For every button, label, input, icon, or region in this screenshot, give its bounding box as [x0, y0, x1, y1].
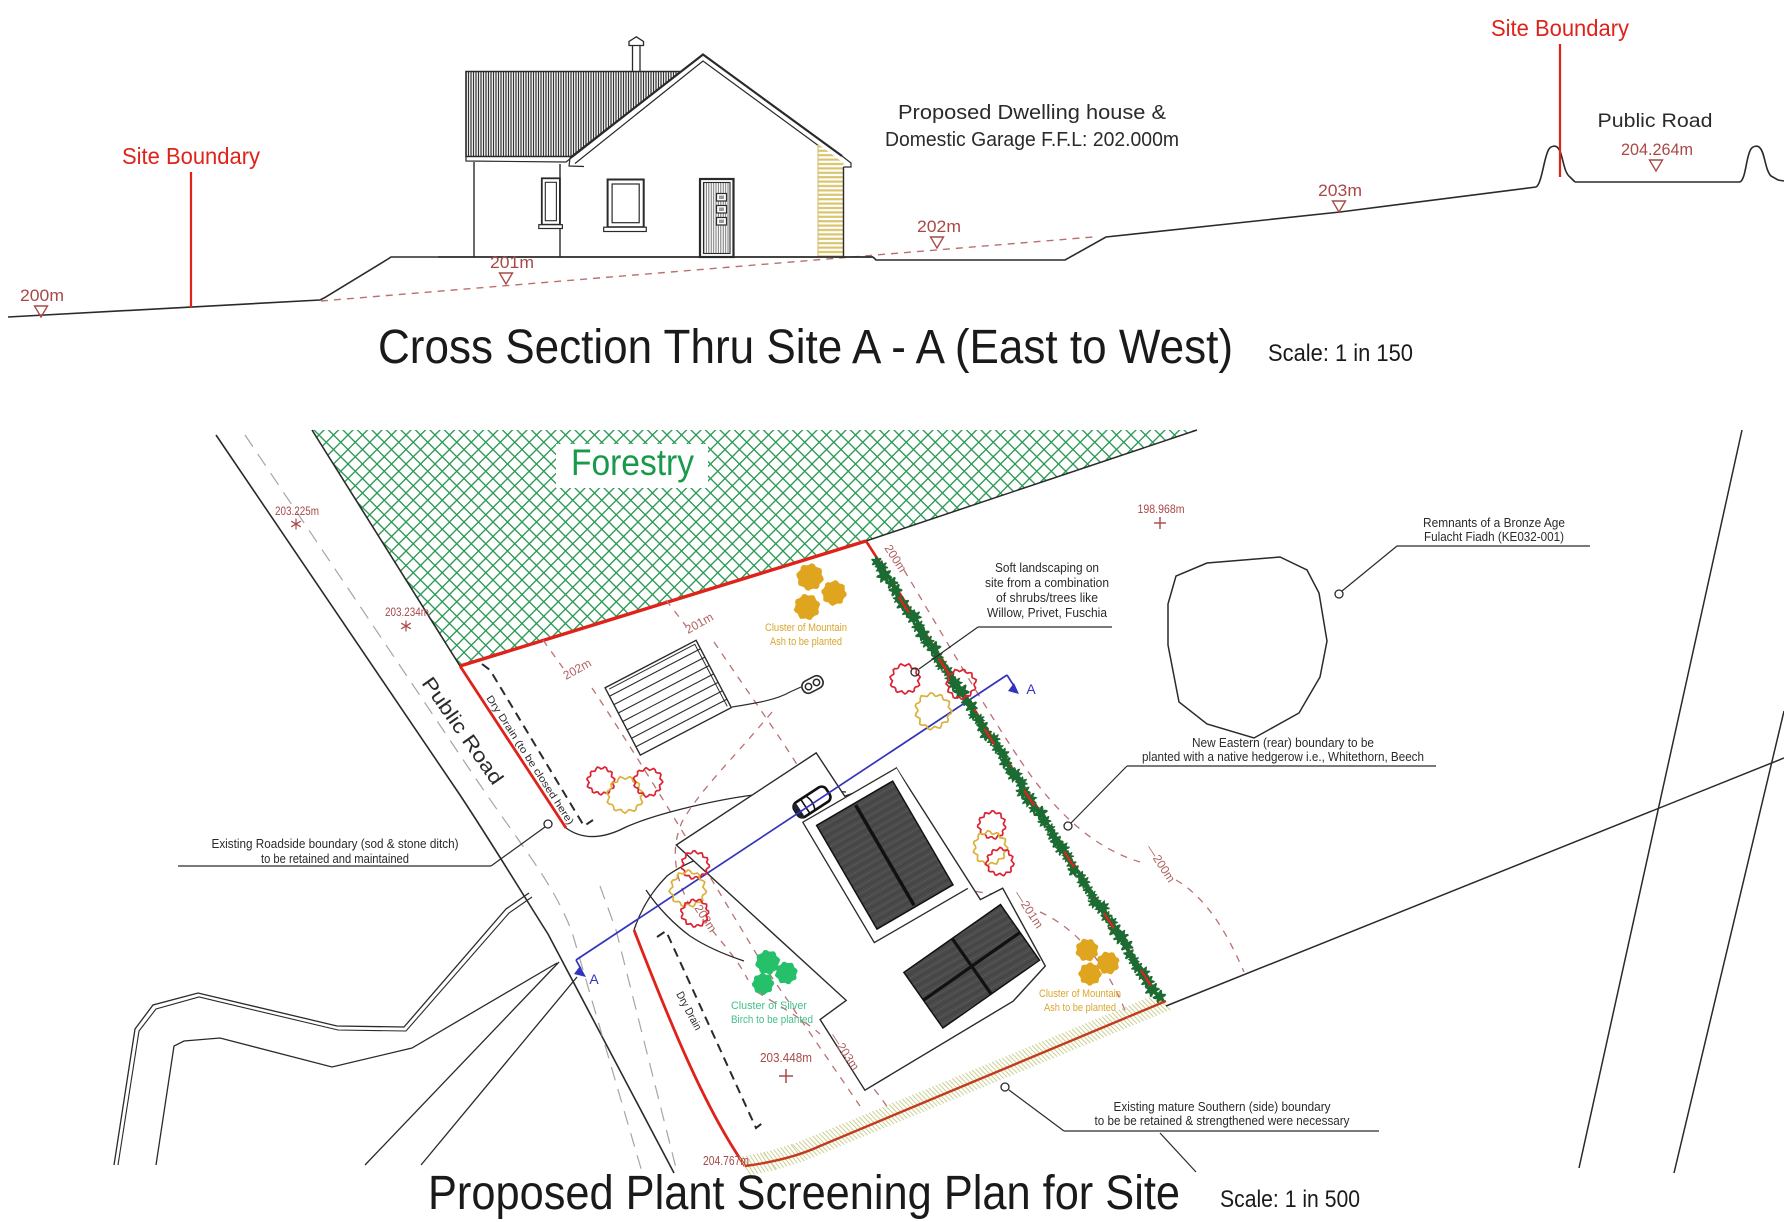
svg-text:planted with a native hedgerow: planted with a native hedgerow i.e., Whi…: [1142, 749, 1424, 764]
svg-text:Proposed Dwelling house &: Proposed Dwelling house &: [898, 102, 1167, 124]
svg-text:of shrubs/trees like: of shrubs/trees like: [996, 591, 1098, 605]
svg-text:Existing Roadside boundary (so: Existing Roadside boundary (sod & stone …: [212, 836, 459, 851]
svg-text:Cluster of Mountain: Cluster of Mountain: [765, 622, 847, 634]
svg-text:Cross Section Thru Site A - A: Cross Section Thru Site A - A (East to W…: [378, 321, 1233, 374]
svg-text:202m: 202m: [917, 217, 961, 236]
svg-text:Ash to be planted: Ash to be planted: [770, 636, 842, 648]
svg-text:204.767m: 204.767m: [703, 1153, 749, 1168]
svg-text:Willow, Privet, Fuschia: Willow, Privet, Fuschia: [987, 606, 1107, 620]
svg-text:site from a combination: site from a combination: [985, 576, 1109, 590]
svg-text:A: A: [589, 971, 599, 987]
svg-text:203.234m: 203.234m: [385, 605, 429, 619]
svg-text:203.225m: 203.225m: [275, 504, 319, 518]
svg-text:Cluster of Silver: Cluster of Silver: [731, 1000, 807, 1012]
svg-text:Existing mature Southern (side: Existing mature Southern (side) boundary: [1114, 1099, 1331, 1114]
svg-text:203.448m: 203.448m: [760, 1050, 812, 1065]
svg-text:Birch to be planted: Birch to be planted: [731, 1014, 813, 1026]
svg-text:Scale: 1 in 500: Scale: 1 in 500: [1220, 1186, 1360, 1213]
svg-text:203m: 203m: [1318, 181, 1362, 200]
svg-text:Fulacht Fiadh (KE032-001): Fulacht Fiadh (KE032-001): [1424, 529, 1564, 544]
svg-text:to be retained and maintained: to be retained and maintained: [261, 851, 409, 866]
svg-text:to be be retained & strengthen: to be be retained & strengthened were ne…: [1095, 1113, 1350, 1128]
svg-text:Site Boundary: Site Boundary: [122, 143, 260, 169]
svg-text:198.968m: 198.968m: [1138, 502, 1185, 516]
svg-text:Forestry: Forestry: [571, 442, 694, 483]
svg-text:Cluster of Mountain: Cluster of Mountain: [1039, 988, 1121, 1000]
svg-text:Soft landscaping on: Soft landscaping on: [995, 561, 1099, 575]
svg-text:Scale: 1 in 150: Scale: 1 in 150: [1268, 340, 1413, 367]
svg-text:Site Boundary: Site Boundary: [1491, 15, 1629, 41]
svg-text:Domestic Garage F.F.L: 202.000: Domestic Garage F.F.L: 202.000m: [885, 129, 1179, 151]
svg-text:Remnants of a Bronze Age: Remnants of a Bronze Age: [1423, 515, 1565, 530]
svg-text:A: A: [1026, 681, 1036, 697]
svg-text:200m: 200m: [20, 286, 64, 305]
svg-text:201m: 201m: [490, 253, 534, 272]
svg-text:New Eastern (rear) boundary to: New Eastern (rear) boundary to be: [1192, 735, 1374, 750]
svg-text:Ash to be planted: Ash to be planted: [1044, 1002, 1116, 1014]
svg-text:Proposed Plant Screening Plan: Proposed Plant Screening Plan for Site: [428, 1167, 1180, 1220]
svg-text:Public Road: Public Road: [1598, 111, 1713, 132]
svg-text:204.264m: 204.264m: [1621, 140, 1693, 159]
